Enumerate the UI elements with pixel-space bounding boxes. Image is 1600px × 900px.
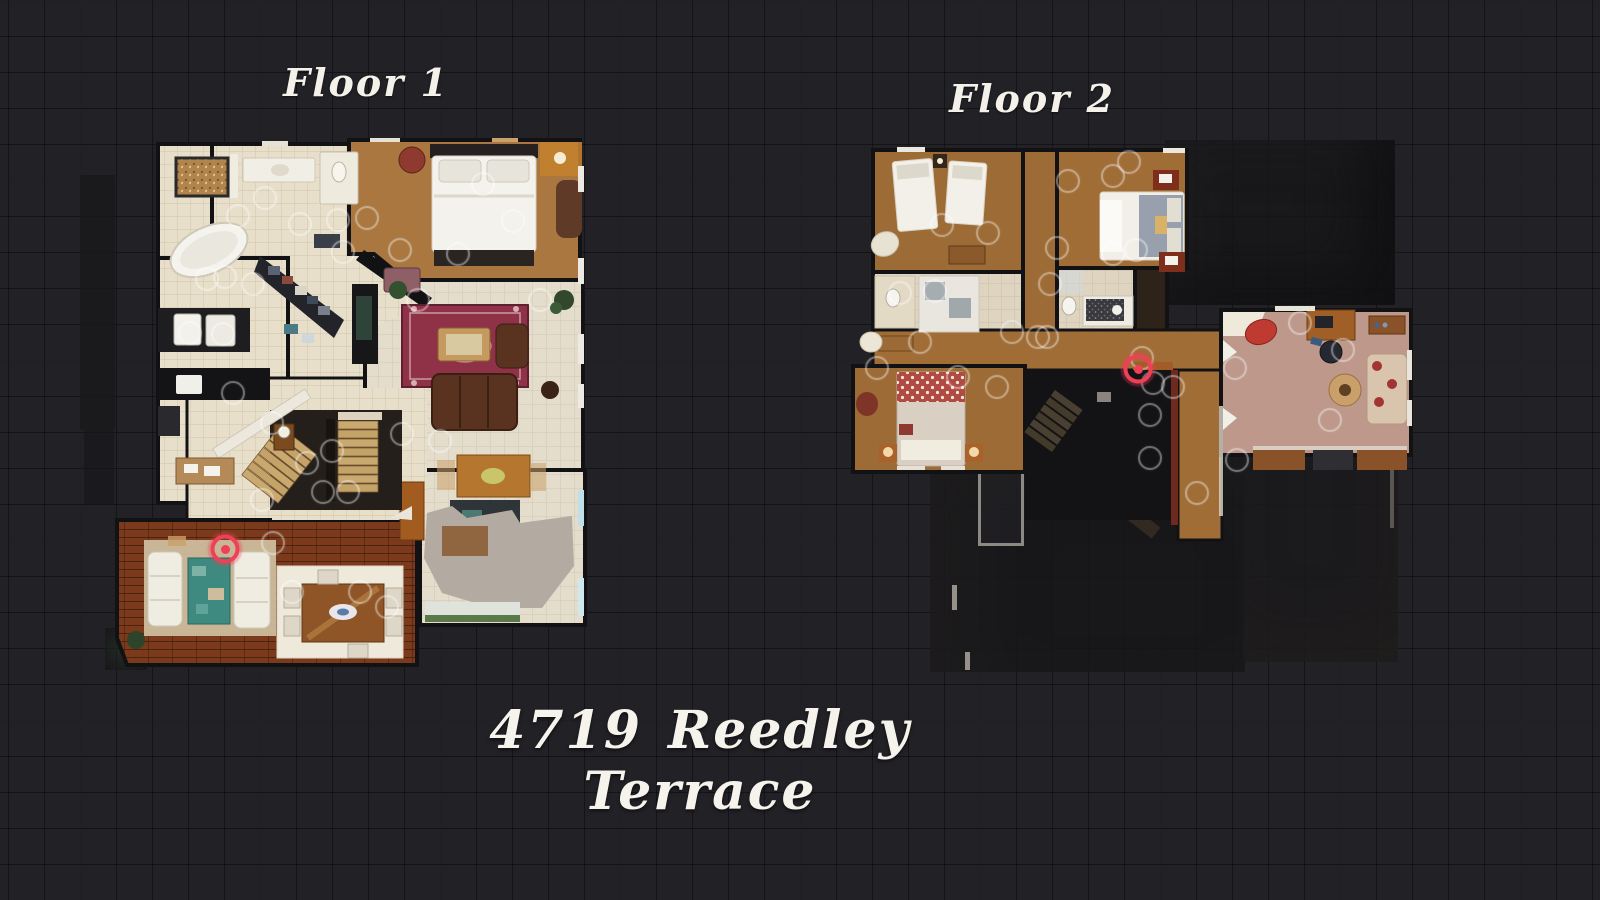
floor1-label: Floor 1	[236, 60, 496, 105]
sweep-ring[interactable]	[226, 204, 250, 228]
sweep-ring[interactable]	[311, 480, 335, 504]
sweep-ring[interactable]	[241, 272, 265, 296]
current-position-marker-floor2[interactable]	[1124, 355, 1153, 384]
sweep-ring[interactable]	[260, 411, 284, 435]
sweep-ring[interactable]	[501, 209, 525, 233]
sweep-ring[interactable]	[288, 212, 312, 236]
sweep-ring[interactable]	[1331, 338, 1355, 362]
sweep-ring[interactable]	[1288, 311, 1312, 335]
current-position-marker-floor1[interactable]	[211, 535, 240, 564]
sweep-ring[interactable]	[261, 531, 285, 555]
sweep-ring[interactable]	[946, 365, 970, 389]
sweep-ring[interactable]	[355, 206, 379, 230]
sweep-ring[interactable]	[336, 480, 360, 504]
sweep-ring[interactable]	[1138, 446, 1162, 470]
floor2-label: Floor 2	[902, 76, 1162, 121]
sweep-ring[interactable]	[195, 267, 219, 291]
sweep-ring[interactable]	[1000, 320, 1024, 344]
sweep-ring[interactable]	[976, 221, 1000, 245]
sweep-ring[interactable]	[388, 238, 412, 262]
sweep-ring[interactable]	[1138, 403, 1162, 427]
sweep-ring[interactable]	[1056, 169, 1080, 193]
sweep-ring[interactable]	[280, 580, 304, 604]
sweep-ring[interactable]	[923, 279, 947, 303]
sweep-ring[interactable]	[320, 439, 344, 463]
sweep-ring[interactable]	[1318, 408, 1342, 432]
sweep-ring[interactable]	[888, 281, 912, 305]
sweep-ring[interactable]	[250, 488, 274, 512]
sweep-ring[interactable]	[930, 213, 954, 237]
sweep-ring[interactable]	[253, 186, 277, 210]
sweep-ring[interactable]	[221, 381, 245, 405]
sweep-ring[interactable]	[1038, 272, 1062, 296]
sweep-ring[interactable]	[1101, 242, 1125, 266]
sweep-ring[interactable]	[1124, 238, 1148, 262]
sweep-ring[interactable]	[428, 429, 452, 453]
sweep-ring[interactable]	[1223, 356, 1247, 380]
sweep-ring[interactable]	[295, 451, 319, 475]
sweep-ring[interactable]	[406, 288, 430, 312]
floorplan-view: Floor 1 Floor 2 4719 Reedley Terrace	[0, 0, 1600, 900]
sweep-ring[interactable]	[446, 242, 470, 266]
sweep-ring[interactable]	[390, 422, 414, 446]
sweep-ring[interactable]	[331, 240, 355, 264]
sweep-ring[interactable]	[1185, 481, 1209, 505]
sweep-ring[interactable]	[1225, 448, 1249, 472]
address-title: 4719 Reedley Terrace	[400, 700, 1000, 822]
sweep-ring[interactable]	[211, 322, 235, 346]
sweep-ring[interactable]	[1045, 236, 1069, 260]
sweep-ring[interactable]	[1161, 375, 1185, 399]
sweep-ring[interactable]	[985, 375, 1009, 399]
sweep-ring[interactable]	[326, 208, 350, 232]
sweep-ring[interactable]	[865, 356, 889, 380]
sweep-ring[interactable]	[178, 321, 202, 345]
sweep-ring[interactable]	[1035, 325, 1059, 349]
sweep-ring[interactable]	[375, 595, 399, 619]
sweep-ring[interactable]	[471, 172, 495, 196]
sweep-ring[interactable]	[908, 330, 932, 354]
sweep-ring[interactable]	[348, 580, 372, 604]
sweep-ring[interactable]	[1117, 150, 1141, 174]
sweep-ring[interactable]	[528, 288, 552, 312]
